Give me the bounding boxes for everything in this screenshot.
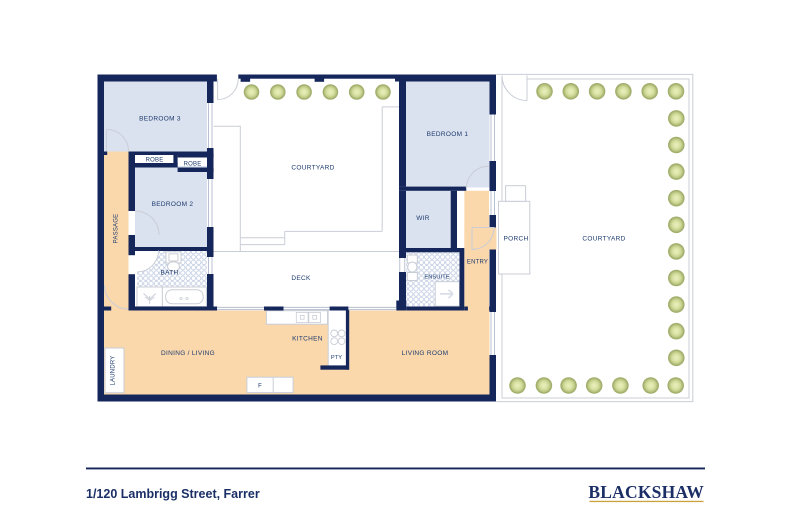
svg-text:PASSAGE: PASSAGE bbox=[113, 214, 119, 244]
svg-text:DECK: DECK bbox=[291, 275, 311, 282]
svg-text:LAUNDRY: LAUNDRY bbox=[111, 356, 117, 386]
svg-text:BEDROOM 1: BEDROOM 1 bbox=[427, 131, 469, 138]
svg-text:BEDROOM 3: BEDROOM 3 bbox=[139, 116, 181, 123]
svg-text:DINING / LIVING: DINING / LIVING bbox=[161, 350, 215, 357]
svg-text:ROBE: ROBE bbox=[146, 158, 164, 164]
svg-text:BATH: BATH bbox=[160, 270, 178, 277]
svg-text:F: F bbox=[258, 384, 262, 390]
svg-text:COURTYARD: COURTYARD bbox=[291, 165, 334, 172]
svg-text:PORCH: PORCH bbox=[504, 236, 529, 243]
svg-text:KITCHEN: KITCHEN bbox=[292, 336, 323, 343]
svg-text:ENTRY: ENTRY bbox=[467, 260, 488, 266]
svg-text:BLACKSHAW: BLACKSHAW bbox=[588, 482, 704, 502]
svg-text:BEDROOM 2: BEDROOM 2 bbox=[152, 201, 194, 208]
svg-text:LIVING ROOM: LIVING ROOM bbox=[402, 350, 449, 357]
svg-text:ENSUITE: ENSUITE bbox=[424, 275, 449, 281]
svg-text:WIR: WIR bbox=[416, 215, 430, 222]
svg-text:PTY: PTY bbox=[331, 355, 342, 361]
svg-text:COURTYARD: COURTYARD bbox=[582, 236, 625, 243]
svg-text:ROBE: ROBE bbox=[184, 162, 202, 168]
svg-text:1/120 Lambrigg Street, Farrer: 1/120 Lambrigg Street, Farrer bbox=[86, 487, 260, 501]
